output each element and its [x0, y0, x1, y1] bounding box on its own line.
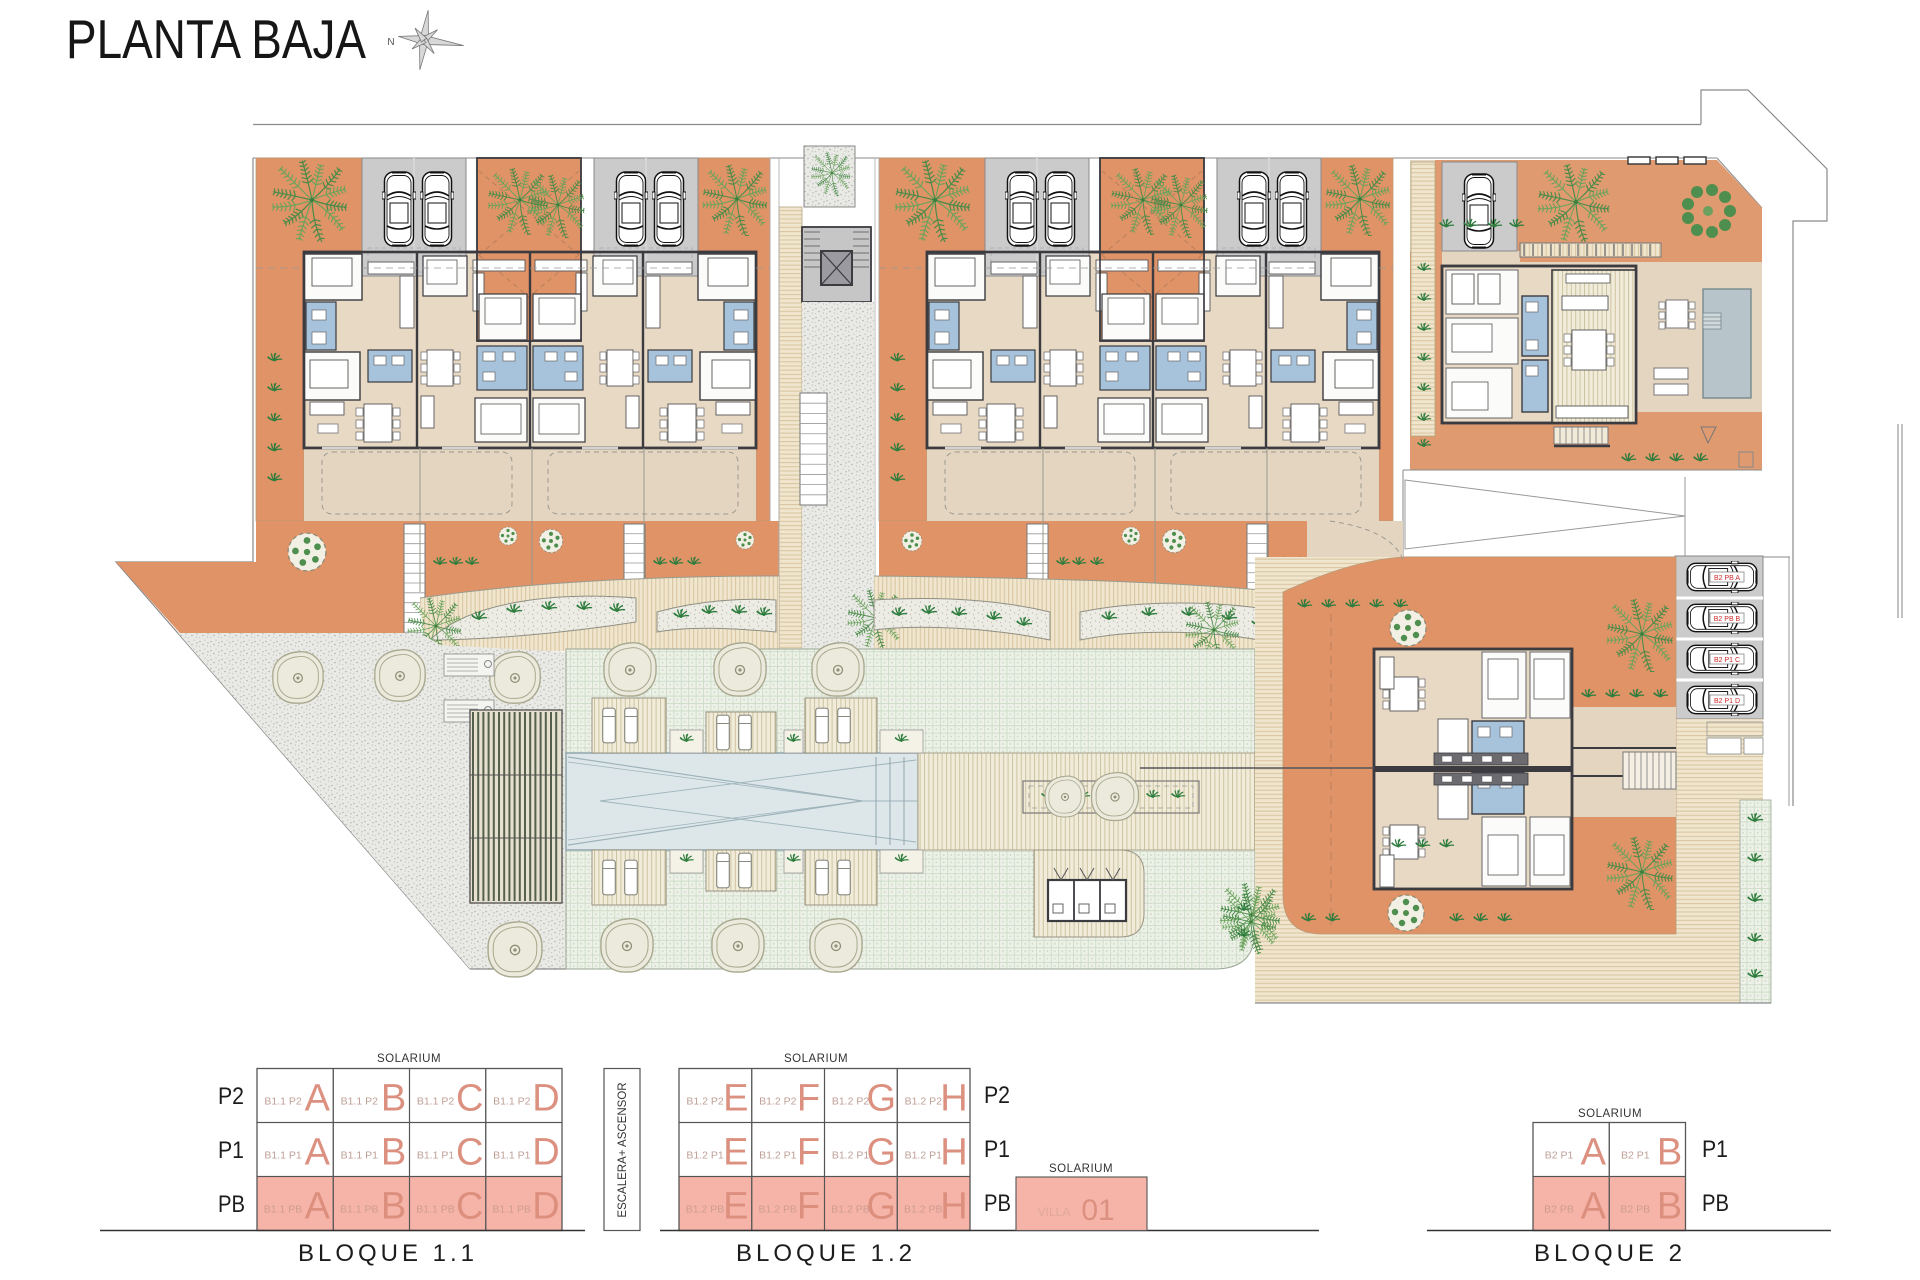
svg-text:G: G — [866, 1186, 896, 1228]
svg-text:B2 P1 D: B2 P1 D — [1714, 698, 1740, 705]
svg-text:A: A — [1581, 1186, 1607, 1228]
svg-text:PLANTA BAJA: PLANTA BAJA — [66, 8, 366, 70]
svg-text:B1.2 P1: B1.2 P1 — [905, 1150, 943, 1162]
svg-text:ESCALERA+ ASCENSOR: ESCALERA+ ASCENSOR — [617, 1082, 629, 1217]
svg-text:H: H — [940, 1078, 967, 1120]
svg-text:F: F — [797, 1078, 820, 1120]
svg-text:B1.2 P2: B1.2 P2 — [832, 1096, 870, 1108]
svg-text:B1.2 PB: B1.2 PB — [831, 1204, 870, 1216]
svg-text:E: E — [723, 1132, 748, 1174]
svg-text:H: H — [940, 1132, 967, 1174]
svg-text:BLOQUE 1.1: BLOQUE 1.1 — [298, 1240, 478, 1267]
svg-text:C: C — [456, 1186, 483, 1228]
svg-text:G: G — [866, 1078, 896, 1120]
svg-text:B1.1 P2: B1.1 P2 — [341, 1096, 379, 1108]
svg-text:B1.2 P1: B1.2 P1 — [832, 1150, 870, 1162]
svg-text:B1.2 P1: B1.2 P1 — [686, 1150, 724, 1162]
svg-text:N: N — [387, 37, 394, 48]
svg-text:C: C — [456, 1078, 483, 1120]
svg-text:P1: P1 — [1702, 1136, 1728, 1163]
svg-text:BLOQUE 1.2: BLOQUE 1.2 — [736, 1240, 916, 1267]
svg-text:A: A — [305, 1186, 331, 1228]
svg-text:D: D — [532, 1132, 559, 1174]
svg-text:B1.2 PB: B1.2 PB — [686, 1204, 725, 1216]
svg-text:B1.2 P1: B1.2 P1 — [759, 1150, 797, 1162]
svg-text:B: B — [381, 1186, 406, 1228]
svg-text:B2 P1: B2 P1 — [1545, 1150, 1574, 1162]
svg-text:B2 PB B: B2 PB B — [1714, 616, 1741, 623]
svg-text:C: C — [456, 1132, 483, 1174]
svg-text:B1.2 P2: B1.2 P2 — [905, 1096, 943, 1108]
svg-text:B1.2 PB: B1.2 PB — [758, 1204, 797, 1216]
svg-text:B1.1 P2: B1.1 P2 — [264, 1096, 302, 1108]
svg-text:E: E — [723, 1078, 748, 1120]
svg-text:B1.1 P2: B1.1 P2 — [493, 1096, 531, 1108]
svg-text:B1.1 P1: B1.1 P1 — [264, 1150, 302, 1162]
svg-text:P2: P2 — [984, 1082, 1010, 1109]
svg-text:01: 01 — [1081, 1194, 1114, 1227]
svg-text:P1: P1 — [984, 1136, 1010, 1163]
svg-text:P2: P2 — [218, 1083, 244, 1110]
svg-text:SOLARIUM: SOLARIUM — [784, 1053, 848, 1065]
svg-text:F: F — [797, 1186, 820, 1228]
svg-text:B: B — [381, 1078, 406, 1120]
svg-text:B2 P1: B2 P1 — [1621, 1150, 1650, 1162]
svg-text:B1.1 PB: B1.1 PB — [264, 1204, 303, 1216]
svg-text:B1.1 P1: B1.1 P1 — [417, 1150, 455, 1162]
svg-text:B1.2 P2: B1.2 P2 — [686, 1096, 724, 1108]
svg-text:B2 PB A: B2 PB A — [1714, 575, 1740, 582]
svg-text:D: D — [532, 1186, 559, 1228]
svg-text:PB: PB — [218, 1191, 245, 1218]
svg-text:B1.1 P2: B1.1 P2 — [417, 1096, 455, 1108]
svg-text:B2 P1 C: B2 P1 C — [1714, 657, 1740, 664]
svg-text:B1.1 P1: B1.1 P1 — [341, 1150, 379, 1162]
svg-text:D: D — [532, 1078, 559, 1120]
svg-text:E: E — [723, 1186, 748, 1228]
svg-text:B1.1 P1: B1.1 P1 — [493, 1150, 531, 1162]
svg-text:G: G — [866, 1132, 896, 1174]
svg-text:P1: P1 — [218, 1137, 244, 1164]
svg-text:SOLARIUM: SOLARIUM — [377, 1053, 441, 1065]
svg-text:VILLA: VILLA — [1038, 1205, 1071, 1219]
svg-text:B1.1 PB: B1.1 PB — [492, 1204, 531, 1216]
svg-text:B1.2 P2: B1.2 P2 — [759, 1096, 797, 1108]
svg-text:A: A — [305, 1078, 331, 1120]
svg-text:B1.1 PB: B1.1 PB — [416, 1204, 455, 1216]
svg-text:B: B — [381, 1132, 406, 1174]
svg-text:BLOQUE 2: BLOQUE 2 — [1534, 1240, 1686, 1267]
svg-text:F: F — [797, 1132, 820, 1174]
svg-text:SOLARIUM: SOLARIUM — [1578, 1108, 1642, 1120]
svg-text:A: A — [1581, 1132, 1607, 1174]
svg-text:B2 PB: B2 PB — [1544, 1204, 1574, 1216]
svg-text:A: A — [305, 1132, 331, 1174]
svg-text:H: H — [940, 1186, 967, 1228]
svg-text:B1.2 PB: B1.2 PB — [904, 1204, 943, 1216]
svg-text:B2 PB: B2 PB — [1620, 1204, 1650, 1216]
svg-text:SOLARIUM: SOLARIUM — [1049, 1163, 1113, 1175]
svg-text:PB: PB — [984, 1190, 1011, 1217]
svg-text:B1.1 PB: B1.1 PB — [340, 1204, 379, 1216]
svg-text:PB: PB — [1702, 1190, 1729, 1217]
svg-text:B: B — [1657, 1186, 1682, 1228]
svg-text:B: B — [1657, 1132, 1682, 1174]
